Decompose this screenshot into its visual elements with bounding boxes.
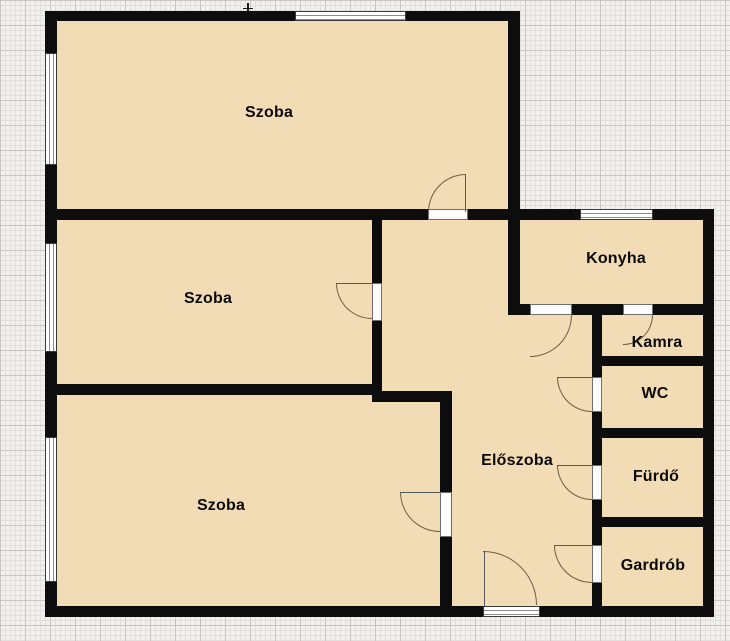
door-leaf-furdo: [557, 465, 592, 466]
window-szoba-middle-left: [45, 243, 57, 352]
room-label-eloszoba: Előszoba: [481, 452, 553, 470]
door-leaf-gardrob: [554, 545, 592, 546]
room-label-szoba-bottom: Szoba: [197, 497, 245, 515]
room-label-szoba-middle: Szoba: [184, 290, 232, 308]
tick-mark-vertical: [247, 3, 249, 11]
door-leaf-szoba-top: [465, 174, 466, 212]
door-leaf-entrance: [484, 551, 485, 606]
window-szoba-top-left: [45, 53, 57, 165]
room-label-gardrob: Gardrób: [621, 557, 686, 575]
room-label-kamra: Kamra: [632, 334, 683, 352]
door-frame-konyha: [530, 304, 572, 315]
wall-kamra-bottom: [592, 356, 714, 366]
door-frame-entrance: [483, 606, 540, 617]
wall-right-exterior: [703, 209, 714, 617]
door-frame-wc: [592, 377, 602, 412]
floor-plan-canvas: Szoba Szoba Szoba Konyha Kamra WC Fürdő …: [0, 0, 730, 641]
door-frame-furdo: [592, 465, 602, 500]
door-frame-kamra: [623, 304, 653, 315]
door-leaf-szoba-middle: [336, 283, 372, 284]
door-frame-szoba-bottom: [440, 492, 452, 537]
room-label-wc: WC: [641, 385, 668, 403]
door-frame-gardrob: [592, 545, 602, 583]
door-leaf-szoba-bottom: [400, 492, 440, 493]
wall-szoba-mid-bottom: [45, 384, 382, 395]
window-szoba-bottom-left: [45, 437, 57, 582]
tick-mark-horizontal: [243, 8, 253, 9]
wall-wc-bottom: [592, 428, 714, 438]
wall-top-exterior: [45, 11, 520, 21]
wall-szoba-top-right: [508, 11, 520, 220]
room-label-furdo: Fürdő: [633, 468, 679, 486]
wall-bottom-exterior: [45, 606, 714, 617]
room-label-szoba-top: Szoba: [245, 104, 293, 122]
room-label-konyha: Konyha: [586, 250, 646, 268]
door-frame-szoba-middle: [372, 283, 382, 321]
wall-konyha-left: [508, 209, 520, 315]
door-leaf-wc: [557, 377, 592, 378]
wall-furdo-bottom: [592, 517, 714, 527]
window-szoba-top-top: [295, 11, 406, 21]
window-konyha-top: [580, 209, 653, 220]
